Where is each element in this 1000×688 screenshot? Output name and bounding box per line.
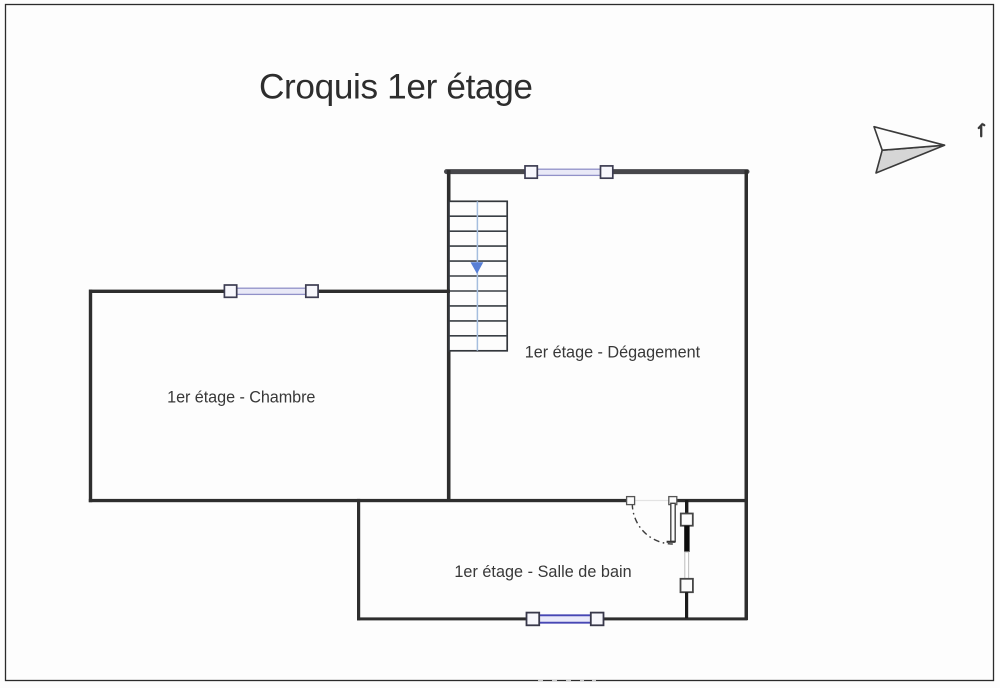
svg-text:1er étage - Salle de bain: 1er étage - Salle de bain [454,563,631,581]
svg-text:1er étage - Chambre: 1er étage - Chambre [167,388,315,406]
svg-text:1er étage - Dégagement: 1er étage - Dégagement [525,344,701,362]
svg-text:Croquis 1er étage: Croquis 1er étage [259,67,533,106]
